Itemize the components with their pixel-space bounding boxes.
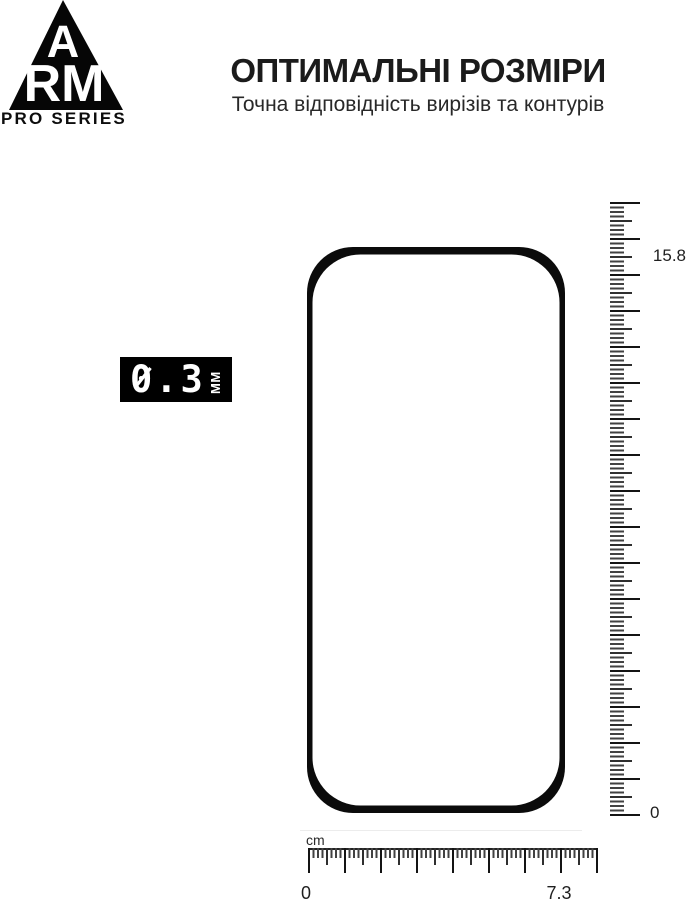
horizontal-ruler-unit-label: cm: [306, 832, 325, 848]
vertical-ruler-max-label: 15.8: [653, 246, 686, 266]
page-subtitle: Точна відповідність вирізів та контурів: [150, 94, 686, 115]
vertical-ruler: [610, 202, 640, 816]
page-title: ОПТИМАЛЬНІ РОЗМІРИ: [150, 54, 686, 87]
ruler-divider-line: [300, 830, 582, 831]
vertical-ruler-major-ticks: [610, 202, 640, 816]
brand-triangle-icon: A RM: [8, 0, 126, 111]
glass-outline-icon: [307, 247, 565, 813]
vertical-ruler-min-label: 0: [650, 803, 659, 823]
thickness-badge: 0.3 ММ: [120, 357, 232, 402]
horizontal-ruler-major-ticks: [308, 848, 598, 873]
glass-inner-area: [313, 255, 560, 806]
brand-monogram-bottom: RM: [24, 55, 105, 111]
screen-protector-size-infographic: A RM PRO SERIES ОПТИМАЛЬНІ РОЗМІРИ Точна…: [0, 0, 688, 907]
header: ОПТИМАЛЬНІ РОЗМІРИ Точна відповідність в…: [150, 54, 686, 115]
horizontal-ruler-start-label: 0: [301, 883, 311, 904]
thickness-badge-art: 0.3 ММ: [120, 357, 232, 402]
brand-series-label: PRO SERIES: [1, 109, 141, 129]
brand-logo: A RM PRO SERIES: [8, 0, 140, 111]
horizontal-ruler: [308, 848, 598, 873]
horizontal-ruler-end-label: 7.3: [544, 883, 574, 904]
thickness-unit: ММ: [208, 371, 223, 394]
screen-protector-outline: [307, 247, 565, 813]
